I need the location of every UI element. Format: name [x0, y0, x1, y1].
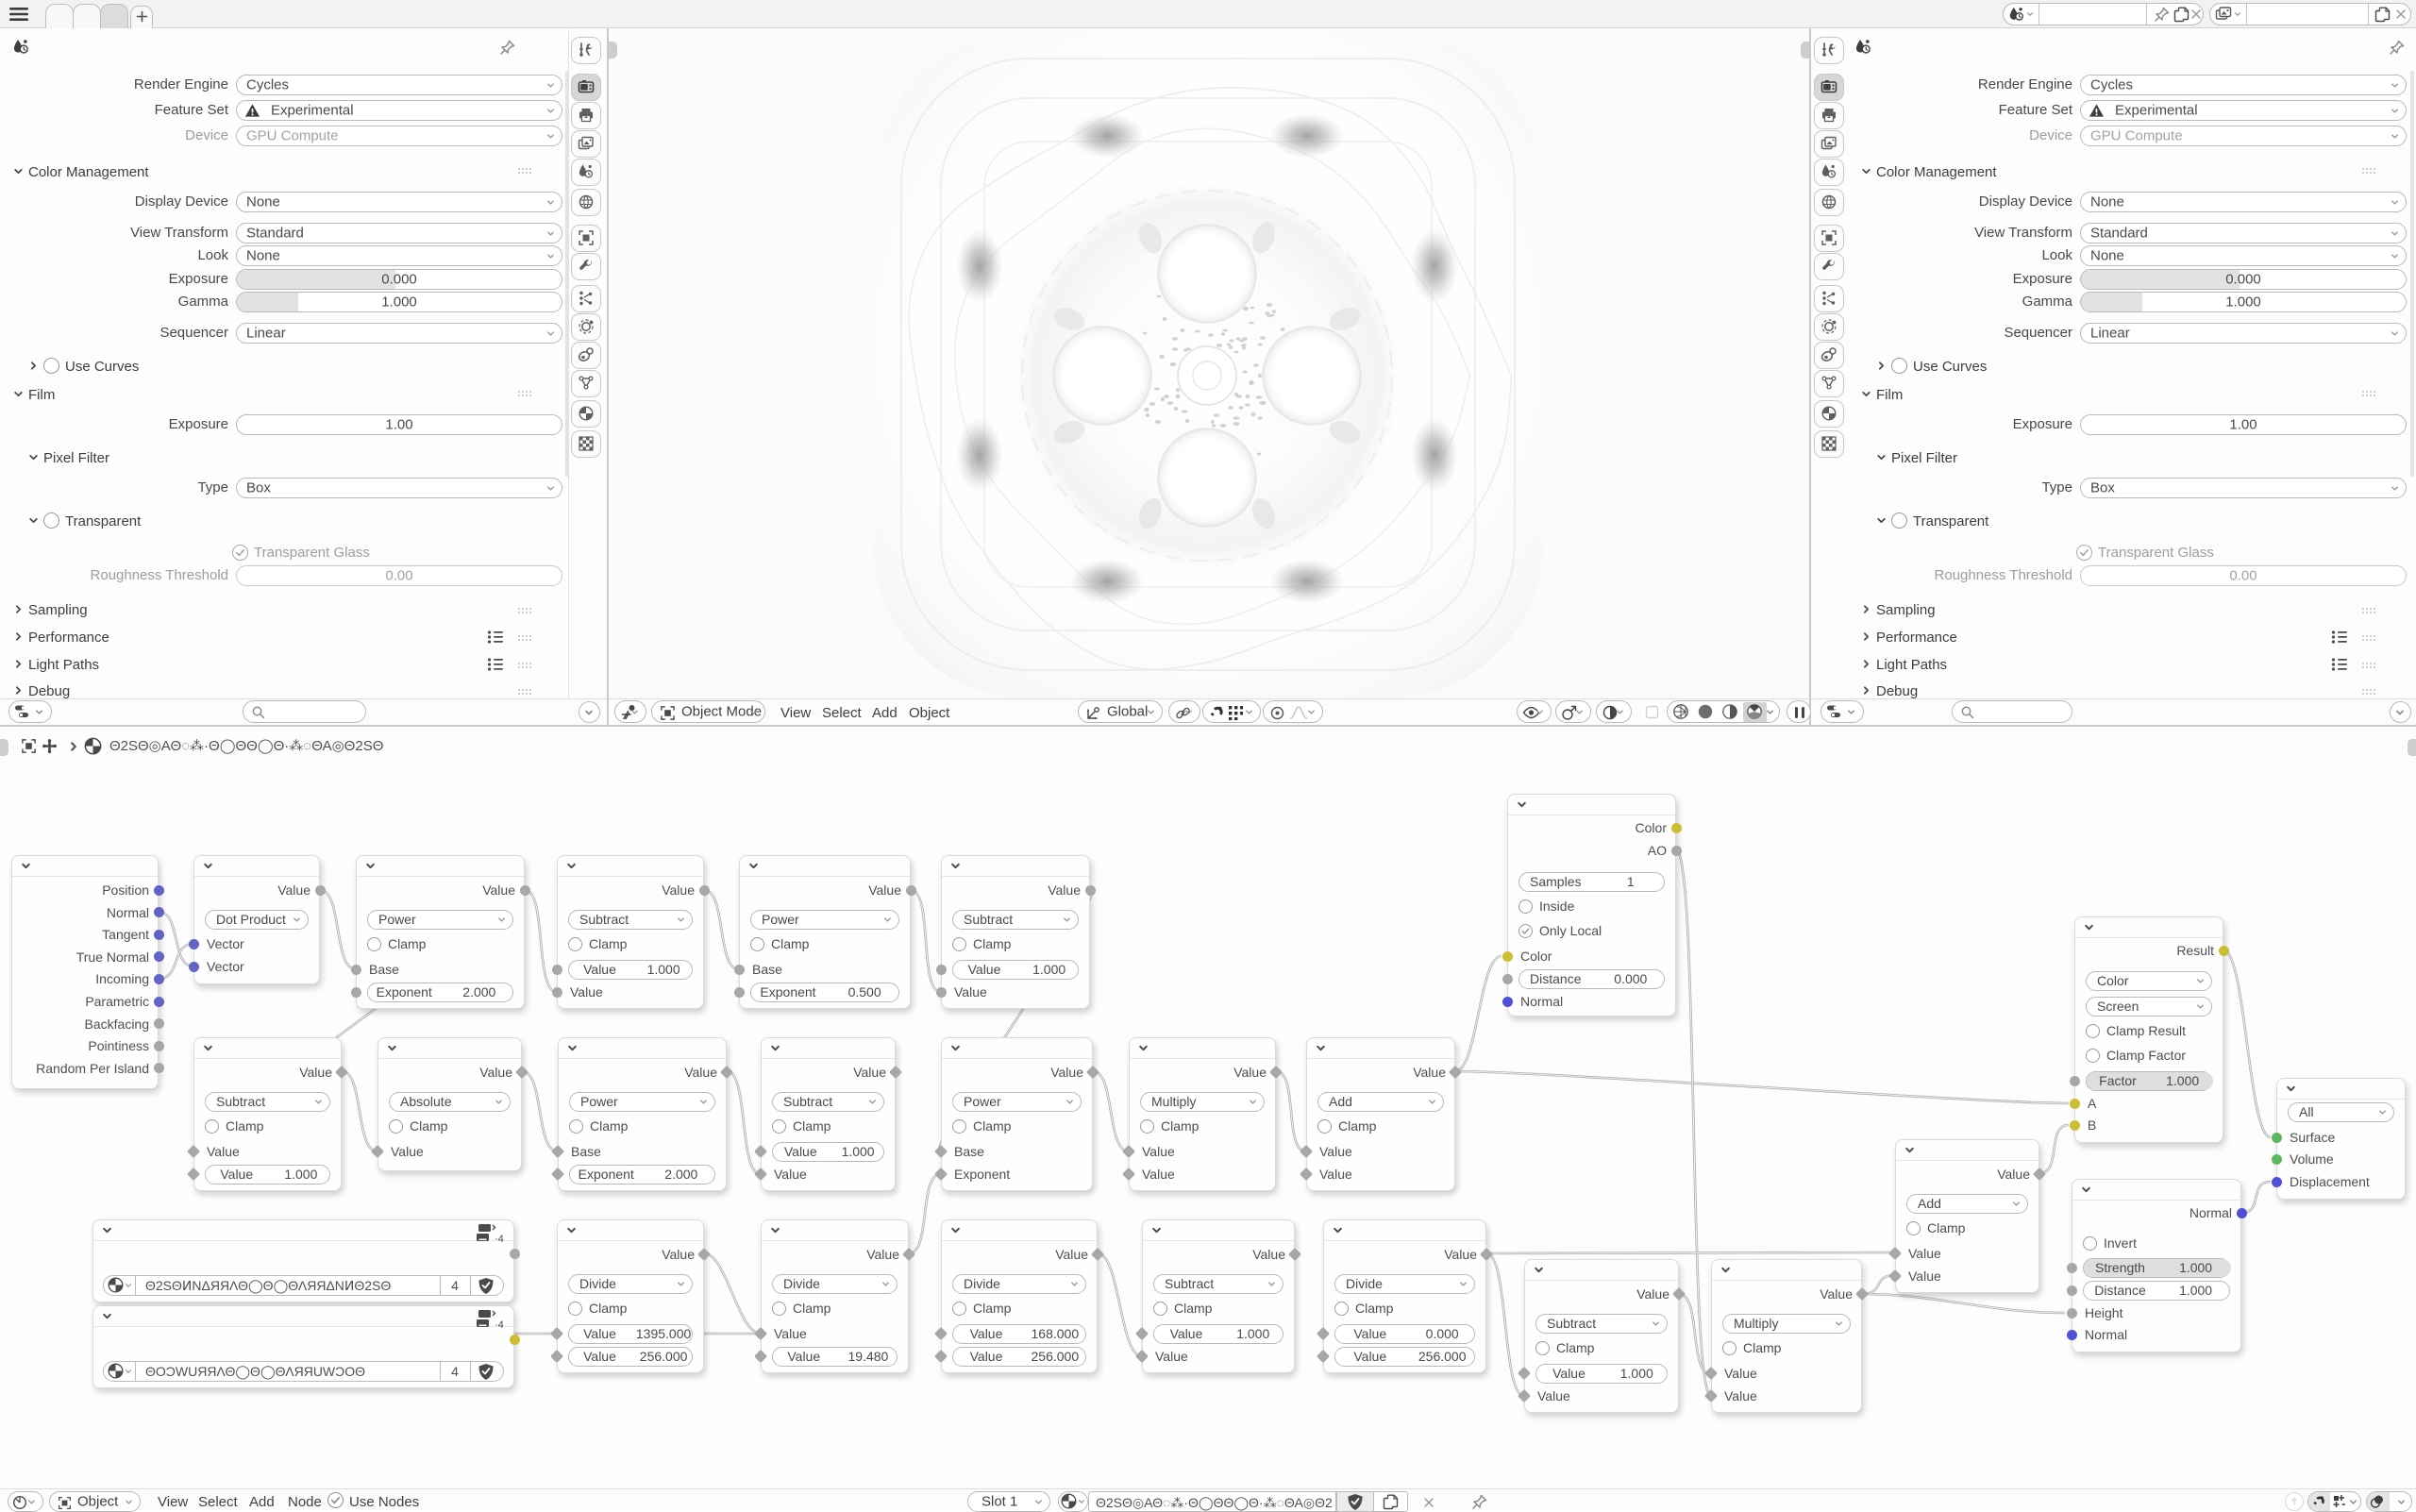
svg-text:·4: ·4 [495, 1319, 504, 1331]
svg-text:·4: ·4 [495, 1234, 504, 1245]
